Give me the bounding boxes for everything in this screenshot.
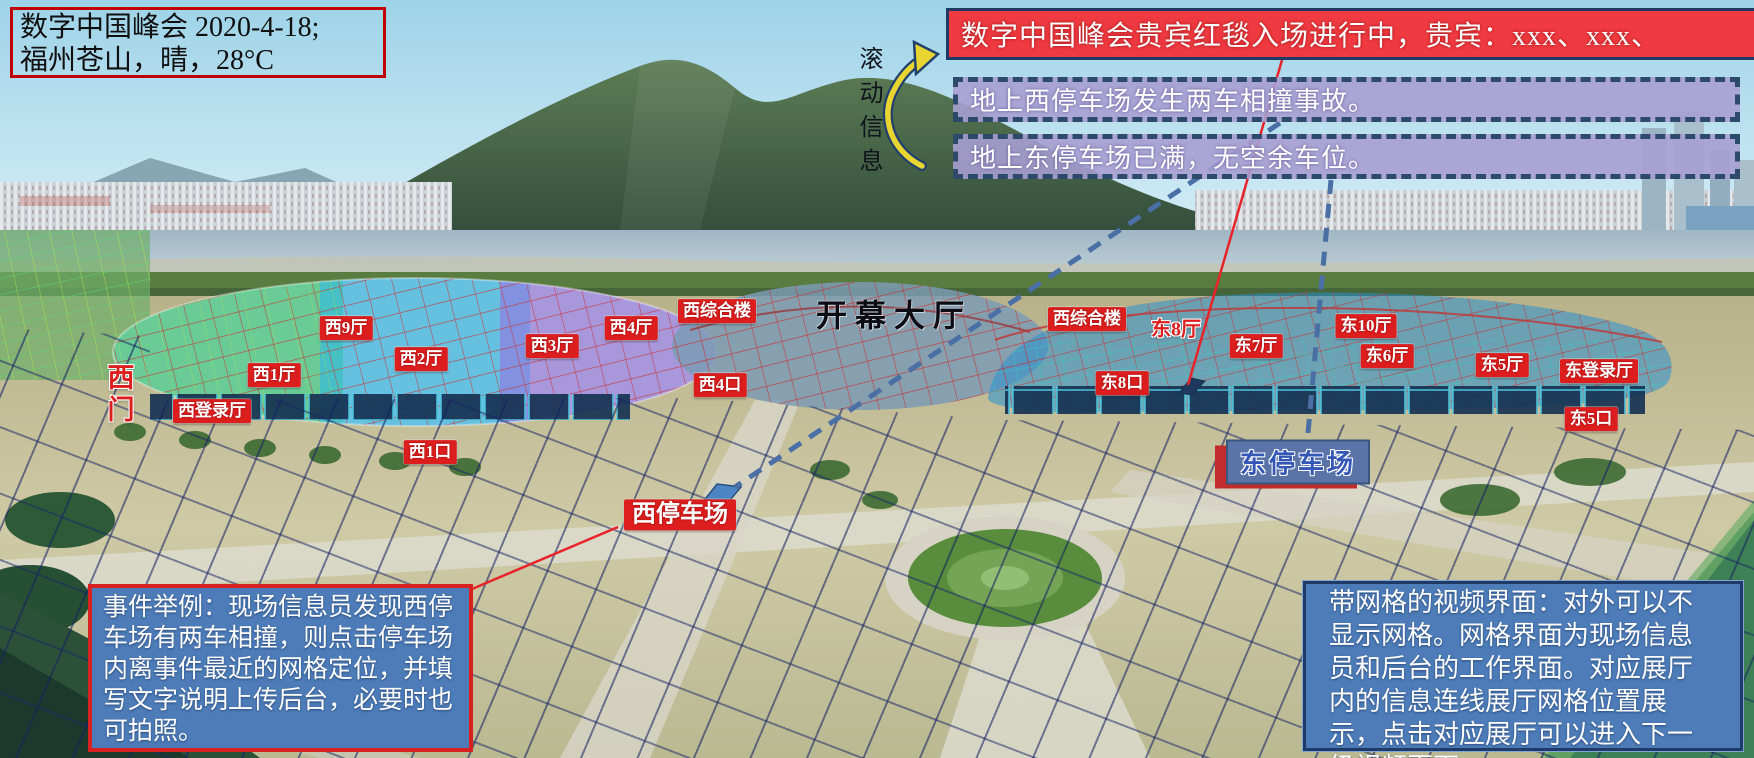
- hall-label-west-1[interactable]: 西1厅: [248, 363, 301, 387]
- vip-redcarpet-banner: 数字中国峰会贵宾红毯入场进行中，贵宾：xxx、xxx、: [946, 8, 1754, 60]
- west-complex-label-2[interactable]: 西综合楼: [1048, 307, 1126, 331]
- hall-label-west-4[interactable]: 西4厅: [605, 316, 658, 340]
- hall-label-west-9[interactable]: 西9厅: [320, 316, 373, 340]
- east-parking-label[interactable]: 东停车场: [1226, 440, 1370, 485]
- west-registration-hall-label[interactable]: 西登录厅: [173, 399, 251, 423]
- hall-label-east-5[interactable]: 东5厅: [1476, 353, 1529, 377]
- hall-label-west-3[interactable]: 西3厅: [526, 334, 579, 358]
- venue-monitor-screen: 西9厅西2厅西3厅西4厅西综合楼西1厅西登录厅西4口西1口西停车场西综合楼东8厅…: [0, 0, 1754, 758]
- gate-label-east-5[interactable]: 东5口: [1565, 407, 1618, 431]
- west-gate-label[interactable]: 西门: [100, 363, 139, 427]
- scroll-cycle-arrow-icon: [868, 38, 952, 174]
- opening-hall-label[interactable]: 开幕大厅: [816, 291, 972, 336]
- hall-label-east-10[interactable]: 东10厅: [1336, 314, 1397, 338]
- west-complex-label-1[interactable]: 西综合楼: [678, 299, 756, 323]
- alert-east-parking-full: 地上东停车场已满，无空余车位。: [953, 134, 1740, 179]
- summit-info-line1: 数字中国峰会 2020-4-18;: [20, 11, 376, 44]
- hall-label-west-2[interactable]: 西2厅: [395, 347, 448, 371]
- hall-label-east-7[interactable]: 东7厅: [1230, 334, 1283, 358]
- hall-label-east-6[interactable]: 东6厅: [1361, 344, 1414, 368]
- gate-label-west-4[interactable]: 西4口: [694, 373, 747, 397]
- east-registration-hall-label[interactable]: 东登录厅: [1560, 359, 1638, 383]
- alert-west-parking-accident: 地上西停车场发生两车相撞事故。: [953, 77, 1740, 122]
- grid-interface-note: 带网格的视频界面：对外可以不显示网格。网格界面为现场信息员和后台的工作界面。对应…: [1303, 581, 1743, 751]
- hall-label-east-8[interactable]: 东8厅: [1151, 313, 1201, 342]
- event-example-note: 事件举例：现场信息员发现西停车场有两车相撞，则点击停车场内离事件最近的网格定位，…: [88, 584, 473, 752]
- west-parking-label[interactable]: 西停车场: [624, 499, 736, 530]
- summit-info-box: 数字中国峰会 2020-4-18; 福州苍山，晴，28°C: [10, 7, 386, 78]
- summit-info-line2: 福州苍山，晴，28°C: [20, 44, 376, 77]
- gate-label-west-1[interactable]: 西1口: [404, 440, 457, 464]
- gate-label-east-8[interactable]: 东8口: [1096, 371, 1149, 395]
